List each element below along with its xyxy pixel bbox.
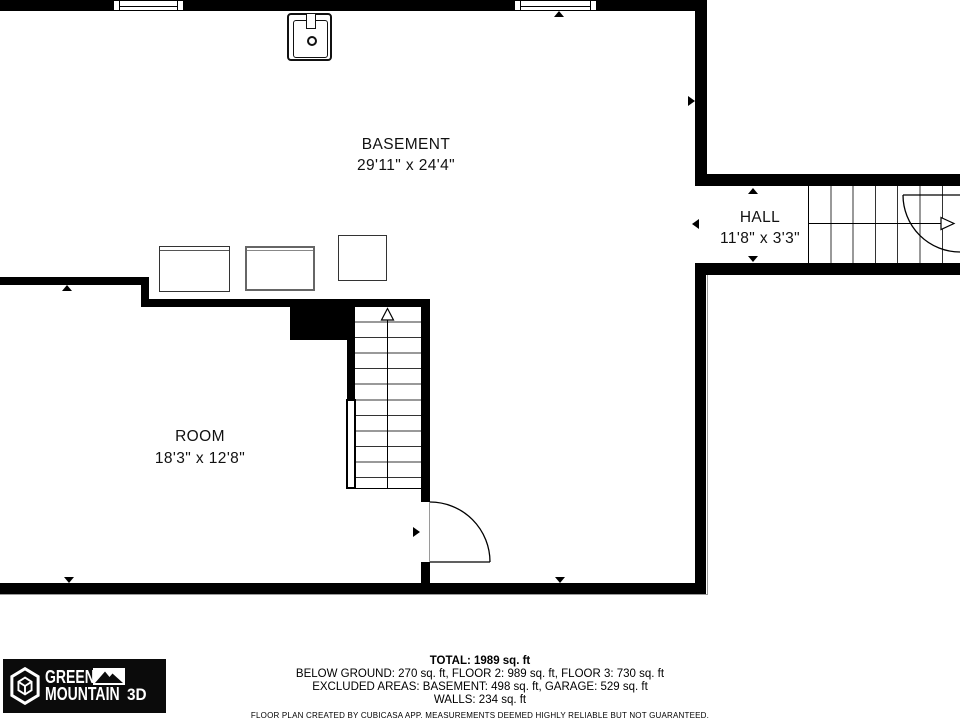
door-opening-edge bbox=[429, 502, 430, 562]
furniture-box bbox=[338, 235, 387, 281]
wall-right-lower bbox=[695, 263, 706, 594]
wall-interior-upper bbox=[0, 277, 149, 285]
wall-bottom bbox=[0, 583, 706, 594]
furniture-cabinet bbox=[159, 246, 230, 292]
room-label-room: ROOM bbox=[175, 428, 225, 446]
marker-arrow-icon bbox=[692, 219, 699, 229]
room-label-hall: HALL bbox=[740, 209, 780, 227]
wall-block-chimney bbox=[290, 299, 350, 340]
wall-interior-lower bbox=[141, 299, 430, 307]
marker-arrow-icon bbox=[555, 577, 565, 583]
marker-arrow-icon bbox=[748, 256, 758, 262]
window-pane-line bbox=[520, 6, 591, 7]
sink-drain bbox=[307, 36, 317, 46]
marker-arrow-icon bbox=[748, 188, 758, 194]
marker-arrow-icon bbox=[554, 11, 564, 17]
marker-arrow-icon bbox=[688, 96, 695, 106]
wall-hall-bottom bbox=[695, 263, 960, 275]
stairs-center-icon bbox=[355, 307, 421, 489]
logo-word-3d: 3D bbox=[127, 686, 147, 703]
wall-outline-right bbox=[707, 275, 708, 594]
marker-arrow-icon bbox=[64, 577, 74, 583]
marker-arrow-icon bbox=[62, 285, 72, 291]
stairs-handrail bbox=[346, 399, 356, 489]
wall-hall-top bbox=[695, 174, 960, 186]
wall-stair-right-stub bbox=[421, 562, 430, 583]
sink-icon bbox=[287, 13, 332, 61]
window-icon bbox=[113, 0, 184, 11]
brand-logo: GREEN MOUNTAIN 3D bbox=[3, 659, 166, 713]
cube-logo-icon bbox=[10, 667, 40, 705]
wall-right-upper bbox=[695, 0, 707, 186]
window-pane-line bbox=[119, 6, 178, 7]
room-label-basement: BASEMENT bbox=[362, 136, 450, 154]
mountain-logo-icon bbox=[93, 668, 125, 685]
furniture-edge-line bbox=[247, 250, 313, 251]
window-icon bbox=[514, 0, 597, 11]
marker-arrow-icon bbox=[413, 527, 420, 537]
sink-faucet bbox=[306, 13, 316, 29]
room-dims-hall: 11'8" x 3'3" bbox=[720, 230, 800, 248]
stairs-hall-icon bbox=[808, 186, 960, 263]
wall-outline-bottom bbox=[0, 594, 708, 595]
logo-text-block: GREEN MOUNTAIN 3D bbox=[45, 669, 148, 703]
logo-word-mountain: MOUNTAIN bbox=[45, 686, 120, 703]
room-dims-room: 18'3" x 12'8" bbox=[155, 450, 245, 468]
plan-linework-layer bbox=[0, 0, 960, 720]
door-swing-arc bbox=[430, 502, 490, 562]
wall-stair-right bbox=[421, 299, 430, 502]
floor-plan-page: BASEMENT 29'11" x 24'4" HALL 11'8" x 3'3… bbox=[0, 0, 960, 720]
furniture-cabinet bbox=[245, 246, 315, 291]
wall-top bbox=[0, 0, 707, 11]
room-dims-basement: 29'11" x 24'4" bbox=[357, 157, 455, 175]
furniture-edge-line bbox=[160, 250, 229, 251]
